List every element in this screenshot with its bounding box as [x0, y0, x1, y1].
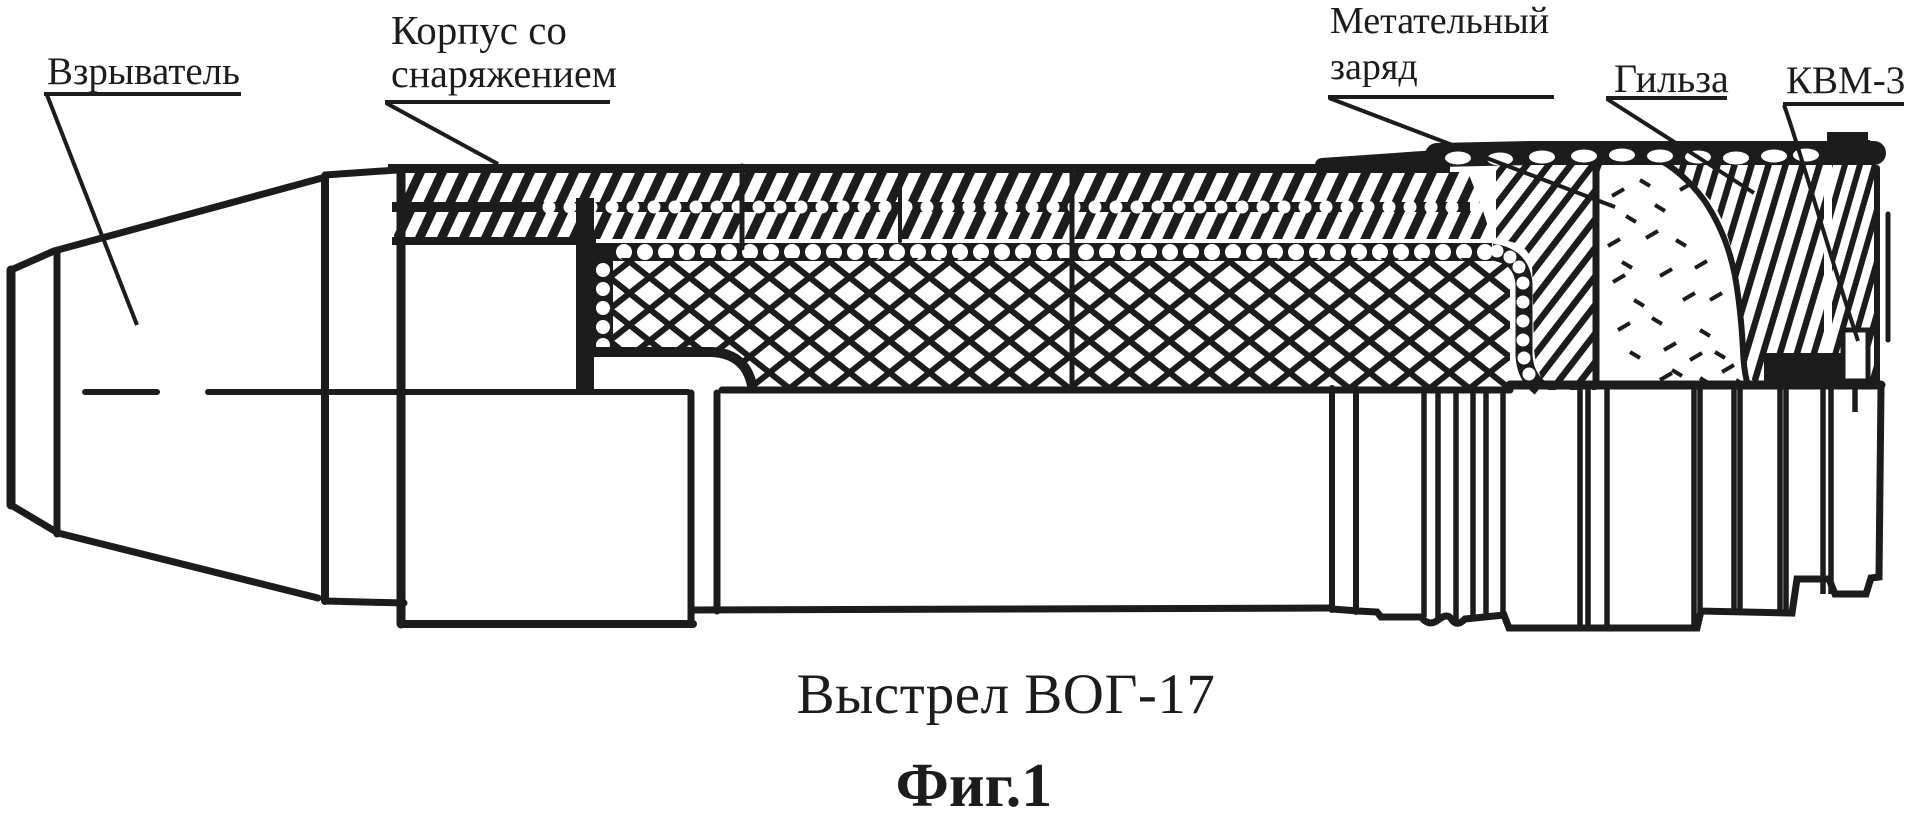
svg-text:Взрыватель: Взрыватель: [47, 50, 240, 93]
svg-text:Метательный: Метательный: [1330, 0, 1549, 42]
svg-text:снаряжением: снаряжением: [391, 51, 617, 96]
svg-text:Фиг.1: Фиг.1: [896, 752, 1053, 816]
svg-text:заряд: заряд: [1330, 46, 1418, 88]
svg-text:Выстрел ВОГ-17: Выстрел ВОГ-17: [797, 663, 1216, 726]
svg-text:КВМ-3: КВМ-3: [1786, 59, 1905, 102]
svg-text:Гильза: Гильза: [1614, 56, 1729, 101]
svg-text:Корпус со: Корпус со: [391, 7, 567, 53]
